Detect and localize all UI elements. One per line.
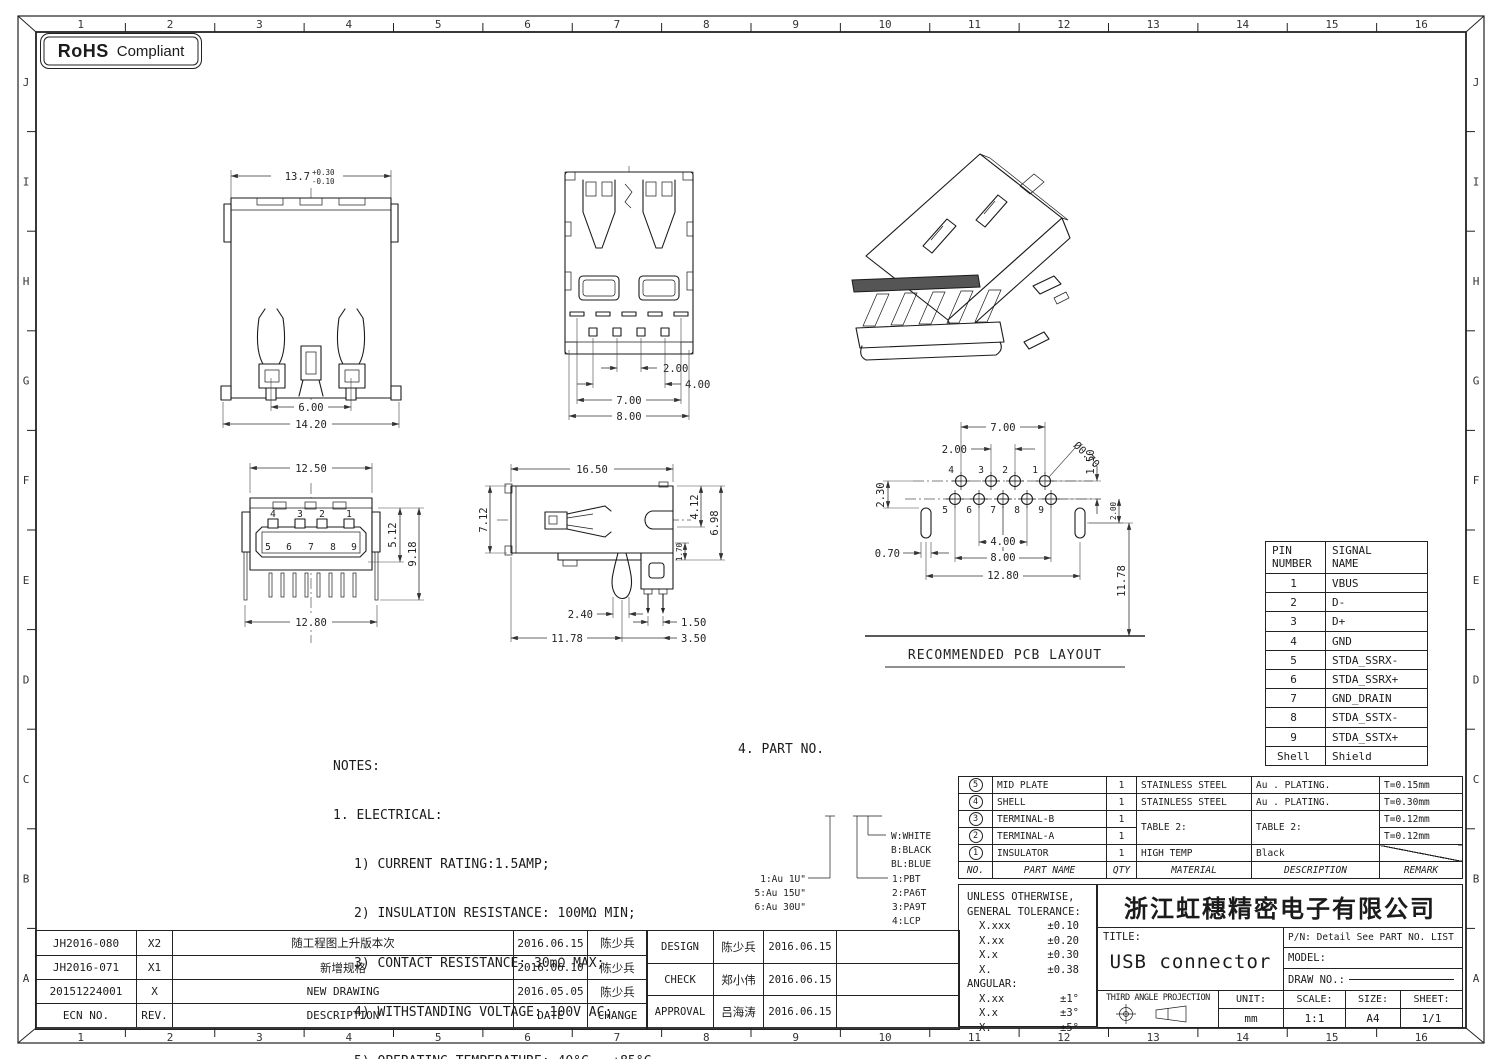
view-side: 16.50 7.12 4.12 6. xyxy=(463,456,758,656)
size-cell: SIZE: A4 xyxy=(1345,990,1401,1028)
dim-label: 6.00 xyxy=(298,402,323,414)
note-line: 5) OPERATING TEMPERATURE:-40°C ~ +85°C. xyxy=(333,1054,763,1059)
grid-col-label: 14 xyxy=(1236,18,1250,31)
grid-row-label: B xyxy=(1473,873,1480,886)
approval-role: DESIGN xyxy=(647,931,713,963)
rev: X1 xyxy=(136,955,172,979)
grid-row-label: A xyxy=(23,972,30,985)
notes-title: NOTES: xyxy=(333,759,763,775)
view-pcb-layout: 4 3 2 1 5 6 7 8 9 7.00 2.00 Ø0.70 1.50 2… xyxy=(853,396,1153,686)
dim-label: 12.50 xyxy=(295,463,327,475)
pin-label: 1 xyxy=(346,509,352,520)
pin-label: 6 xyxy=(966,505,972,516)
grid-row-label: H xyxy=(1473,275,1480,288)
grid-row-label: I xyxy=(1473,175,1480,188)
plating-option: 1:Au 1U" xyxy=(760,874,806,885)
revision-table: JH2016-080 X2 随工程图上升版本次 2016.06.15 陈少兵 J… xyxy=(35,930,648,1030)
grid-col-label: 15 xyxy=(1325,1031,1338,1044)
approval-name: 郑小伟 xyxy=(713,963,763,995)
pin-number: 7 xyxy=(1266,688,1325,707)
part-no-circle: 3 xyxy=(969,812,983,826)
dim-label: 14.20 xyxy=(295,419,327,431)
grid-col-label: 3 xyxy=(256,1031,263,1044)
dim-label: 11.78 xyxy=(1116,565,1128,597)
part-material: STAINLESS STEEL xyxy=(1137,794,1252,811)
pin-label: 5 xyxy=(265,542,271,553)
dim-label: 1.50 xyxy=(1085,449,1097,474)
part-qty: 1 xyxy=(1107,828,1137,845)
col-header: REMARK xyxy=(1380,862,1463,879)
tolerance-block: UNLESS OTHERWISE, GENERAL TOLERANCE: X.x… xyxy=(958,884,1097,1027)
pin-number: 1 xyxy=(1266,573,1325,592)
part-no-heading: 4. PART NO. xyxy=(738,742,824,757)
grid-col-label: 16 xyxy=(1415,18,1428,31)
pin-number: 2 xyxy=(1266,592,1325,611)
part-name: TERMINAL-A xyxy=(993,828,1107,845)
ecn-no: JH2016-071 xyxy=(36,955,136,979)
note-line: 1. ELECTRICAL: xyxy=(333,808,763,824)
pin-number: 4 xyxy=(1266,631,1325,650)
dim-label: 7.00 xyxy=(990,422,1015,434)
rev-description: 随工程图上升版本次 xyxy=(172,931,513,955)
dim-label: 13.7 xyxy=(285,171,310,183)
rev-description: 新增规格 xyxy=(172,955,513,979)
grid-row-label: J xyxy=(1473,76,1480,89)
unit-value: mm xyxy=(1219,1009,1283,1028)
signal-name: STDA_SSRX- xyxy=(1325,650,1427,669)
drawno-row: DRAW NO.: xyxy=(1283,968,1463,991)
pin-number: 5 xyxy=(1266,650,1325,669)
part-description: Au . PLATING. xyxy=(1252,777,1380,794)
part-remark-empty xyxy=(1380,845,1463,862)
grid-col-label: 15 xyxy=(1325,18,1338,31)
table-row: 1 INSULATOR 1 HIGH TEMP Black xyxy=(959,845,1463,862)
col-header: QTY xyxy=(1107,862,1137,879)
grid-row-label: B xyxy=(23,873,30,886)
part-no-circle: 4 xyxy=(969,795,983,809)
approval-blank xyxy=(836,931,959,963)
part-remark: T=0.15mm xyxy=(1380,777,1463,794)
pin-label: 4 xyxy=(948,465,954,476)
dim-label: 3.50 xyxy=(681,633,706,645)
approval-table: DESIGN 陈少兵 2016.06.15 CHECK 郑小伟 2016.06.… xyxy=(646,930,960,1030)
grid-col-label: 9 xyxy=(792,18,799,31)
col-header: MATERIAL xyxy=(1137,862,1252,879)
pn-row: P/N: Detail See PART NO. LIST xyxy=(1283,927,1463,948)
pin-signal-table: PINNUMBER SIGNALNAME 1 VBUS 2 D- 3 D+ 4 … xyxy=(1265,541,1428,766)
grid-col-label: 3 xyxy=(256,18,263,31)
tolerance-row: X.x±0.30 xyxy=(967,948,1079,963)
approval-name: 吕海涛 xyxy=(713,995,763,1027)
pin-label: 2 xyxy=(319,509,325,520)
scale-cell: SCALE: 1:1 xyxy=(1283,990,1346,1028)
rev-date: 2016.06.15 xyxy=(513,931,587,955)
pin-label: 3 xyxy=(297,509,303,520)
scale-label: SCALE: xyxy=(1284,991,1345,1009)
part-qty: 1 xyxy=(1107,777,1137,794)
approval-role: CHECK xyxy=(647,963,713,995)
color-option: B:BLACK xyxy=(891,845,931,856)
dim-tol-plus: +0.30 xyxy=(312,168,335,177)
grid-col-label: 1 xyxy=(77,1031,84,1044)
grid-col-label: 1 xyxy=(77,18,84,31)
col-header: PART NAME xyxy=(993,862,1107,879)
drawno-blank-line xyxy=(1349,979,1454,980)
tolerance-row: X.±0.38 xyxy=(967,963,1079,978)
grid-col-label: 6 xyxy=(524,18,531,31)
part-no-circle: 1 xyxy=(969,846,983,860)
pin-table-header: PINNUMBER xyxy=(1266,542,1325,573)
col-header: REV. xyxy=(136,1003,172,1027)
color-option: BL:BLUE xyxy=(891,859,931,870)
ecn-no: 20151224001 xyxy=(36,979,136,1003)
pin-label: 7 xyxy=(308,542,314,553)
table-header-row: NO. PART NAME QTY MATERIAL DESCRIPTION R… xyxy=(959,862,1463,879)
part-no-legend: 1:Au 1U" 5:Au 15U" 6:Au 30U" W:WHITE B:B… xyxy=(740,795,965,935)
col-header: ECN NO. xyxy=(36,1003,136,1027)
view-isometric xyxy=(828,128,1073,373)
pin-label: 6 xyxy=(286,542,292,553)
pin-label: 4 xyxy=(270,509,276,520)
material-option: 1:PBT xyxy=(892,874,921,885)
part-qty: 1 xyxy=(1107,845,1137,862)
part-name: SHELL xyxy=(993,794,1107,811)
angular-label: ANGULAR: xyxy=(967,977,1096,992)
model-row: MODEL: xyxy=(1283,947,1463,969)
grid-col-label: 9 xyxy=(792,1031,799,1044)
dim-label: 12.80 xyxy=(987,570,1019,582)
part-qty: 1 xyxy=(1107,794,1137,811)
signal-name: Shield xyxy=(1325,746,1427,765)
approval-date: 2016.06.15 xyxy=(763,963,836,995)
part-description: Au . PLATING. xyxy=(1252,794,1380,811)
unit-label: UNIT: xyxy=(1219,991,1283,1009)
dim-label: 7.00 xyxy=(616,395,641,407)
tolerance-line: GENERAL TOLERANCE: xyxy=(967,905,1096,920)
rev-description: NEW DRAWING xyxy=(172,979,513,1003)
pin-label: 2 xyxy=(1002,465,1008,476)
grid-col-label: 4 xyxy=(346,18,353,31)
pin-label: 1 xyxy=(1032,465,1038,476)
signal-name: STDA_SSRX+ xyxy=(1325,669,1427,688)
pin-label: 3 xyxy=(978,465,984,476)
dim-label: 16.50 xyxy=(576,464,608,476)
dim-tol-minus: -0.10 xyxy=(312,177,335,186)
dim-label: 4.00 xyxy=(990,536,1015,548)
drawing-sheet: 1122334455667788991010111112121313141415… xyxy=(0,0,1502,1059)
dim-label: 2.00 xyxy=(663,363,688,375)
approval-date: 2016.06.15 xyxy=(763,931,836,963)
grid-row-label: G xyxy=(23,375,30,388)
grid-row-label: J xyxy=(23,76,30,89)
part-description: Black xyxy=(1252,845,1380,862)
tolerance-row: X.xxx±0.10 xyxy=(967,919,1079,934)
projection-label: THIRD ANGLE PROJECTION xyxy=(1098,993,1218,1003)
grid-row-label: G xyxy=(1473,375,1480,388)
pin-table-header: SIGNALNAME xyxy=(1325,542,1427,573)
material-option: 2:PA6T xyxy=(892,888,927,899)
grid-row-label: F xyxy=(1473,474,1480,487)
plating-option: 6:Au 30U" xyxy=(755,902,806,913)
grid-col-label: 14 xyxy=(1236,1031,1250,1044)
signal-name: STDA_SSTX- xyxy=(1325,707,1427,726)
col-header: DESCRIPTION xyxy=(1252,862,1380,879)
rev: X2 xyxy=(136,931,172,955)
rev: X xyxy=(136,979,172,1003)
dim-label: 11.78 xyxy=(551,633,583,645)
note-line: 2) INSULATION RESISTANCE: 100MΩ MIN; xyxy=(333,906,763,922)
grid-col-label: 13 xyxy=(1147,18,1160,31)
rohs-badge: RoHS Compliant xyxy=(40,33,202,69)
sheet-value: 1/1 xyxy=(1401,1009,1462,1028)
grid-col-label: 11 xyxy=(968,18,981,31)
tolerance-row: X.x±3° xyxy=(967,1006,1079,1021)
grid-col-label: 8 xyxy=(703,18,710,31)
part-material: STAINLESS STEEL xyxy=(1137,777,1252,794)
signal-name: D- xyxy=(1325,592,1427,611)
title-label: TITLE: xyxy=(1098,928,1283,943)
dim-label: 2.00 xyxy=(1109,501,1118,520)
approval-blank xyxy=(836,963,959,995)
pin-label: 7 xyxy=(990,505,996,516)
grid-col-label: 7 xyxy=(614,18,621,31)
grid-col-label: 13 xyxy=(1147,1031,1160,1044)
rev-date: 2016.05.05 xyxy=(513,979,587,1003)
col-header: CHANGE xyxy=(587,1003,647,1027)
material-option: 3:PA9T xyxy=(892,902,927,913)
dim-label: 2.40 xyxy=(568,609,593,621)
grid-col-label: 10 xyxy=(878,1031,891,1044)
dim-label: 7.12 xyxy=(478,507,490,532)
dim-label: 1.50 xyxy=(681,617,706,629)
part-material: TABLE 2: xyxy=(1137,811,1252,845)
part-remark: T=0.30mm xyxy=(1380,794,1463,811)
corner-cut xyxy=(18,1028,36,1043)
table-row: 5 MID PLATE 1 STAINLESS STEEL Au . PLATI… xyxy=(959,777,1463,794)
dim-label: 8.00 xyxy=(990,552,1015,564)
view-front: 12.50 4 3 2 1 5 6 7 8 9 xyxy=(228,455,453,653)
grid-row-label: D xyxy=(23,673,30,686)
signal-name: VBUS xyxy=(1325,573,1427,592)
size-value: A4 xyxy=(1346,1009,1400,1028)
col-header: NO. xyxy=(959,862,993,879)
approval-role: APPROVAL xyxy=(647,995,713,1027)
color-option: W:WHITE xyxy=(891,831,931,842)
pin-label: 8 xyxy=(330,542,336,553)
parts-table: 5 MID PLATE 1 STAINLESS STEEL Au . PLATI… xyxy=(958,776,1463,879)
material-option: 4:LCP xyxy=(892,916,921,927)
unit-cell: UNIT: mm xyxy=(1218,990,1284,1028)
grid-col-label: 2 xyxy=(167,18,174,31)
pcb-caption: RECOMMENDED PCB LAYOUT xyxy=(908,648,1102,663)
size-label: SIZE: xyxy=(1346,991,1400,1009)
part-material: HIGH TEMP xyxy=(1137,845,1252,862)
plating-option: 5:Au 15U" xyxy=(755,888,806,899)
tolerance-line: UNLESS OTHERWISE, xyxy=(967,890,1096,905)
third-angle-projection-icon xyxy=(1098,1003,1218,1025)
grid-row-label: F xyxy=(23,474,30,487)
corner-cut xyxy=(18,16,36,32)
dim-label: 4.12 xyxy=(689,494,701,519)
grid-col-label: 10 xyxy=(878,18,891,31)
projection-cell: THIRD ANGLE PROJECTION xyxy=(1097,990,1219,1028)
grid-row-label: D xyxy=(1473,673,1480,686)
dim-label: 6.98 xyxy=(709,510,721,535)
pin-number: 6 xyxy=(1266,669,1325,688)
sheet-cell: SHEET: 1/1 xyxy=(1400,990,1463,1028)
dim-label: 1.70 xyxy=(675,542,684,561)
pin-label: 8 xyxy=(1014,505,1020,516)
rev-date: 2016.06.10 xyxy=(513,955,587,979)
scale-value: 1:1 xyxy=(1284,1009,1345,1028)
corner-cut xyxy=(1466,16,1484,32)
pin-label: 5 xyxy=(942,505,948,516)
view-top: 13.7 +0.30 -0.10 6.00 xyxy=(213,160,418,432)
dim-label: 5.12 xyxy=(387,522,399,547)
part-name: TERMINAL-B xyxy=(993,811,1107,828)
pin-number: Shell xyxy=(1266,746,1325,765)
grid-row-label: C xyxy=(23,773,30,786)
part-qty: 1 xyxy=(1107,811,1137,828)
signal-name: GND xyxy=(1325,631,1427,650)
ecn-no: JH2016-080 xyxy=(36,931,136,955)
part-name: MID PLATE xyxy=(993,777,1107,794)
part-description: TABLE 2: xyxy=(1252,811,1380,845)
pin-number: 3 xyxy=(1266,611,1325,630)
dim-label: 0.70 xyxy=(875,548,900,560)
grid-row-label: I xyxy=(23,175,30,188)
pin-number: 9 xyxy=(1266,727,1325,746)
table-row: 4 SHELL 1 STAINLESS STEEL Au . PLATING. … xyxy=(959,794,1463,811)
part-no-circle: 5 xyxy=(969,778,983,792)
rev-change: 陈少兵 xyxy=(587,955,647,979)
drawno-label: DRAW NO.: xyxy=(1288,969,1345,991)
dim-label: 8.00 xyxy=(616,411,641,423)
pin-label: 9 xyxy=(351,542,357,553)
rev-change: 陈少兵 xyxy=(587,979,647,1003)
grid-col-label: 5 xyxy=(435,18,442,31)
col-header: DESCRIPTION xyxy=(172,1003,513,1027)
dim-label: 2.00 xyxy=(942,444,967,456)
tolerance-row: X.xx±0.20 xyxy=(967,934,1079,949)
signal-name: D+ xyxy=(1325,611,1427,630)
tolerance-row: X.±5° xyxy=(967,1021,1079,1036)
dim-label: 9.18 xyxy=(407,541,419,566)
approval-date: 2016.06.15 xyxy=(763,995,836,1027)
title-cell: TITLE: USB connector xyxy=(1097,927,1284,991)
rohs-text: Compliant xyxy=(117,43,185,60)
approval-blank xyxy=(836,995,959,1027)
pin-label: 9 xyxy=(1038,505,1044,516)
tolerance-row: X.xx±1° xyxy=(967,992,1079,1007)
grid-row-label: E xyxy=(1473,574,1480,587)
grid-row-label: E xyxy=(23,574,30,587)
grid-row-label: C xyxy=(1473,773,1480,786)
approval-name: 陈少兵 xyxy=(713,931,763,963)
view-bottom: 2.00 4.00 7.00 8.00 xyxy=(543,160,758,432)
part-name: INSULATOR xyxy=(993,845,1107,862)
grid-row-label: A xyxy=(1473,972,1480,985)
pin-number: 8 xyxy=(1266,707,1325,726)
grid-col-label: 2 xyxy=(167,1031,174,1044)
rev-change: 陈少兵 xyxy=(587,931,647,955)
sheet-label: SHEET: xyxy=(1401,991,1462,1009)
dim-label: 2.30 xyxy=(875,482,887,507)
corner-cut xyxy=(1466,1028,1484,1043)
drawing-title: USB connector xyxy=(1098,951,1283,973)
part-no-circle: 2 xyxy=(969,829,983,843)
signal-name: GND_DRAIN xyxy=(1325,688,1427,707)
dim-label: 12.80 xyxy=(295,617,327,629)
grid-col-label: 16 xyxy=(1415,1031,1428,1044)
company-name: 浙江虹穗精密电子有限公司 xyxy=(1097,884,1463,928)
grid-col-label: 12 xyxy=(1057,18,1070,31)
col-header: DATE xyxy=(513,1003,587,1027)
note-line: 1) CURRENT RATING:1.5AMP; xyxy=(333,857,763,873)
part-remark: T=0.12mm xyxy=(1380,811,1463,828)
rohs-bold: RoHS xyxy=(58,41,109,62)
part-remark: T=0.12mm xyxy=(1380,828,1463,845)
grid-row-label: H xyxy=(23,275,30,288)
table-row: 3 TERMINAL-B 1 TABLE 2: TABLE 2: T=0.12m… xyxy=(959,811,1463,828)
signal-name: STDA_SSTX+ xyxy=(1325,727,1427,746)
